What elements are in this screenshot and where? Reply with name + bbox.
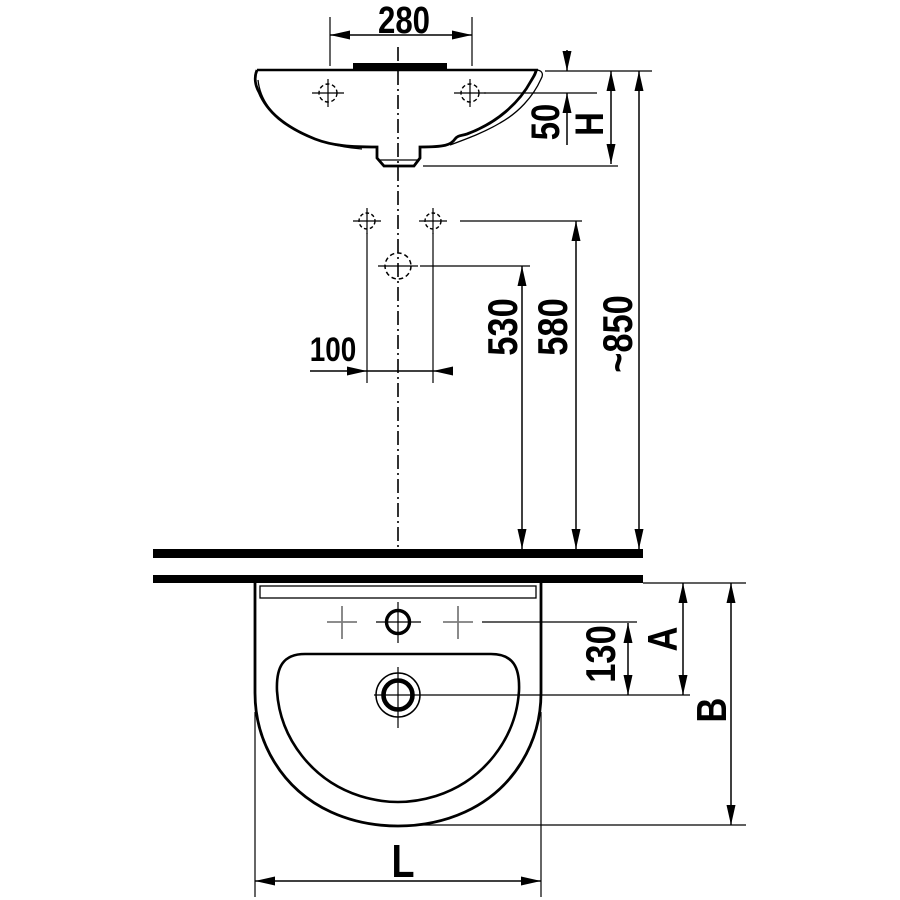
front-view-basin xyxy=(255,583,541,826)
dim-label-A: A xyxy=(643,590,683,688)
technical-drawing-canvas xyxy=(0,0,900,900)
dimension-arrowheads xyxy=(255,31,736,886)
wall-section xyxy=(153,549,643,583)
wall-bar-upper xyxy=(153,549,643,558)
drain-hole xyxy=(376,667,420,728)
alt-tap-position-cross-right xyxy=(443,606,473,639)
fixing-hole-marker-left xyxy=(353,208,381,234)
bowl-inner-line-left xyxy=(258,80,362,149)
wall-bar-lower xyxy=(153,575,643,583)
dim-label-H: H xyxy=(570,83,610,165)
alt-tap-position-cross-left xyxy=(327,606,357,639)
washbasin-dimension-diagram: 280 50 H 100 530 580 ~850 130 A B L xyxy=(0,0,900,900)
dim-label-850: ~850 xyxy=(598,285,638,383)
dim-label-130: 130 xyxy=(581,605,621,703)
fixing-hole-marker-right xyxy=(419,208,447,234)
dim-label-B: B xyxy=(692,661,732,759)
tap-hole-marker-left xyxy=(312,79,344,107)
dim-label-L: L xyxy=(354,838,452,884)
dim-label-100: 100 xyxy=(284,330,382,370)
side-view-basin xyxy=(255,63,542,166)
mounting-strip xyxy=(260,586,536,598)
reference-lines xyxy=(255,17,746,897)
dim-label-280: 280 xyxy=(355,1,453,41)
dim-label-50: 50 xyxy=(526,81,566,163)
tap-hole-marker-right xyxy=(454,79,486,107)
dim-label-530: 530 xyxy=(483,278,523,376)
dim-label-580: 580 xyxy=(533,278,573,376)
bowl-outline xyxy=(255,70,536,166)
dimension-lines xyxy=(255,35,731,881)
rear-rim-band xyxy=(353,63,447,70)
tap-hole xyxy=(376,602,421,643)
